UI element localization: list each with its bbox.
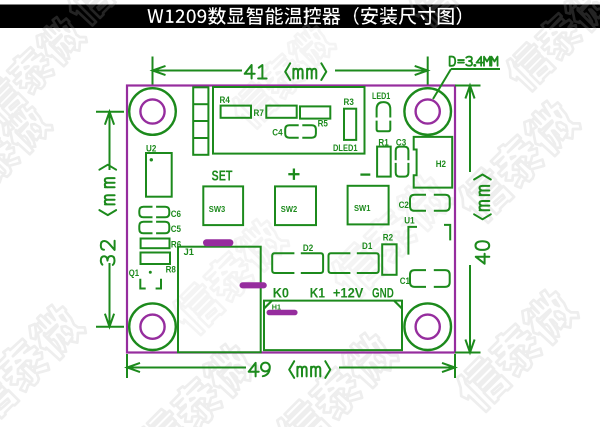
svg-text:R6: R6 xyxy=(171,240,181,250)
svg-text:C5: C5 xyxy=(171,224,181,234)
svg-text:R4: R4 xyxy=(220,95,230,105)
svg-text:SET: SET xyxy=(212,168,233,185)
svg-text:D2: D2 xyxy=(303,243,313,253)
svg-text:R2: R2 xyxy=(383,233,393,243)
svg-text:C4: C4 xyxy=(272,127,282,137)
svg-text:SW3: SW3 xyxy=(209,204,226,214)
svg-text:J1: J1 xyxy=(184,247,194,257)
svg-text:C6: C6 xyxy=(171,209,181,219)
svg-text:C1: C1 xyxy=(400,276,410,286)
svg-text:R8: R8 xyxy=(166,265,176,275)
svg-text:SW1: SW1 xyxy=(354,203,371,213)
svg-text:U1: U1 xyxy=(404,215,414,225)
svg-text:LED1: LED1 xyxy=(372,91,390,101)
svg-text:H2: H2 xyxy=(436,159,446,169)
svg-text:K1: K1 xyxy=(310,284,325,300)
svg-text:R1: R1 xyxy=(378,138,388,148)
svg-text:R5: R5 xyxy=(318,119,328,129)
svg-text:C3: C3 xyxy=(396,138,406,148)
svg-text:GND: GND xyxy=(372,284,394,300)
svg-text:SW2: SW2 xyxy=(281,204,298,214)
svg-text:C2: C2 xyxy=(399,200,409,210)
svg-text:+12V: +12V xyxy=(333,284,364,300)
svg-text:R3: R3 xyxy=(344,97,354,107)
svg-text:DLED1: DLED1 xyxy=(333,143,358,153)
svg-text:U2: U2 xyxy=(146,144,156,154)
svg-text:K0: K0 xyxy=(273,284,289,300)
svg-text:H1: H1 xyxy=(272,303,281,312)
svg-text:R7: R7 xyxy=(254,108,264,118)
svg-text:D1: D1 xyxy=(362,241,372,251)
svg-text:Q1: Q1 xyxy=(129,268,139,278)
